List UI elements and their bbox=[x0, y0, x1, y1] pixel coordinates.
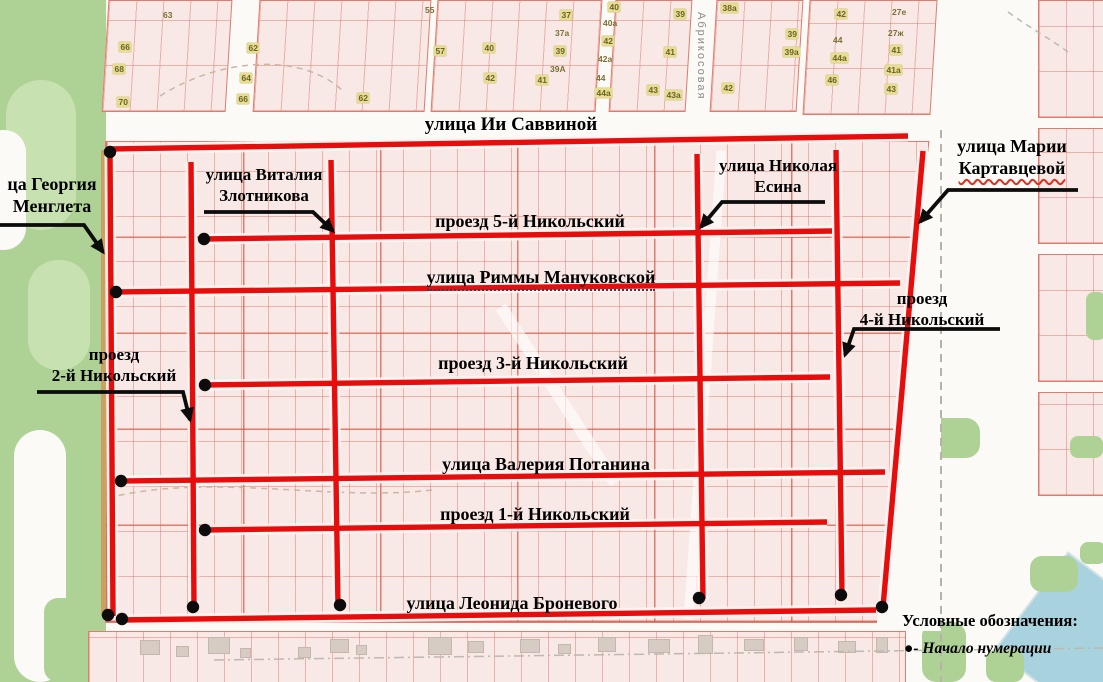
pointer-arrow-mengleta bbox=[0, 225, 103, 252]
start-numbering-dot bbox=[104, 146, 116, 158]
street-label-p2-line2: 2-й Никольский bbox=[0, 365, 334, 386]
street-label-savvinoy: улица Ии Саввиной bbox=[291, 113, 731, 137]
start-numbering-dot bbox=[102, 609, 114, 621]
legend-title: Условные обозначения: bbox=[902, 611, 1078, 631]
street-label-p2: проезд2-й Никольский bbox=[0, 344, 334, 386]
start-numbering-dot bbox=[835, 589, 847, 601]
street-label-p2-text1: проезд bbox=[89, 344, 139, 365]
street-label-potanina-text1: улица Валерия Потанина bbox=[442, 453, 650, 475]
street-label-p1-line1: проезд 1-й Никольский bbox=[315, 503, 755, 525]
street-label-bronevogo-line1: улица Леонида Броневого bbox=[292, 592, 732, 614]
street-label-zlotnikova-text1: улица Виталия bbox=[206, 164, 323, 185]
start-numbering-dot bbox=[116, 613, 128, 625]
street-label-kartavtsevoy-text2: Картавцевой bbox=[959, 157, 1066, 179]
street-label-p4-text1: проезд bbox=[897, 288, 947, 309]
street-label-p3-line1: проезд 3-й Никольский bbox=[313, 352, 753, 374]
start-numbering-dot bbox=[198, 233, 210, 245]
street-label-p5: проезд 5-й Никольский bbox=[310, 210, 750, 232]
street-label-p4-line1: проезд bbox=[702, 288, 1103, 309]
street-label-p2-text2: 2-й Никольский bbox=[52, 365, 177, 386]
street-label-kartavtsevoy-line2: Картавцевой bbox=[792, 157, 1103, 179]
street-label-p1: проезд 1-й Никольский bbox=[315, 503, 755, 525]
start-numbering-dot bbox=[115, 475, 127, 487]
start-numbering-dot bbox=[110, 286, 122, 298]
street-label-p4-line2: 4-й Никольский bbox=[702, 309, 1103, 330]
street-label-zlotnikova-line2: Злотникова bbox=[44, 185, 484, 206]
street-label-p3: проезд 3-й Никольский bbox=[313, 352, 753, 374]
street-overlay bbox=[0, 0, 1103, 682]
street-label-kartavtsevoy-line1: улица Марии bbox=[792, 135, 1103, 157]
street-label-savvinoy-text1: улица Ии Саввиной bbox=[425, 113, 597, 137]
street-label-p3-text1: проезд 3-й Никольский bbox=[438, 352, 628, 374]
street-label-manukovskoy-line1: улица Риммы Мануковской bbox=[321, 266, 761, 291]
street-label-p5-line1: проезд 5-й Никольский bbox=[310, 210, 750, 232]
street-label-bronevogo-text1: улица Леонида Броневого bbox=[406, 592, 617, 614]
map-canvas: 6366687062646662555740423737а3939А414040… bbox=[0, 0, 1103, 682]
start-numbering-dot bbox=[876, 601, 888, 613]
street-label-bronevogo: улица Леонида Броневого bbox=[292, 592, 732, 614]
field-path bbox=[108, 487, 432, 498]
street-label-zlotnikova-text2: Злотникова bbox=[219, 185, 309, 206]
street-label-p1-text1: проезд 1-й Никольский bbox=[440, 503, 630, 525]
street-label-manukovskoy-text1: улица Риммы Мануковской bbox=[427, 266, 656, 291]
street-label-p2-line1: проезд bbox=[0, 344, 334, 365]
street-label-savvinoy-line1: улица Ии Саввиной bbox=[291, 113, 731, 137]
start-numbering-dot bbox=[199, 524, 211, 536]
topright-boundary bbox=[1008, 12, 1068, 52]
start-numbering-dot bbox=[187, 601, 199, 613]
street-label-zlotnikova-line1: улица Виталия bbox=[44, 164, 484, 185]
street-label-zlotnikova: улица ВиталияЗлотникова bbox=[44, 164, 484, 206]
legend-start-numbering-item: ●- Начало нумерации bbox=[904, 640, 1051, 658]
street-label-potanina-line1: улица Валерия Потанина bbox=[326, 453, 766, 475]
street-label-p4: проезд4-й Никольский bbox=[702, 288, 1103, 330]
street-label-potanina: улица Валерия Потанина bbox=[326, 453, 766, 475]
street-label-manukovskoy: улица Риммы Мануковской bbox=[321, 266, 761, 291]
street-label-kartavtsevoy: улица МарииКартавцевой bbox=[792, 135, 1103, 180]
street-label-p4-text2: 4-й Никольский bbox=[860, 309, 985, 330]
street-label-kartavtsevoy-text1: улица Марии bbox=[957, 135, 1067, 157]
field-path bbox=[160, 64, 342, 96]
street-label-p5-text1: проезд 5-й Никольский bbox=[435, 210, 625, 232]
